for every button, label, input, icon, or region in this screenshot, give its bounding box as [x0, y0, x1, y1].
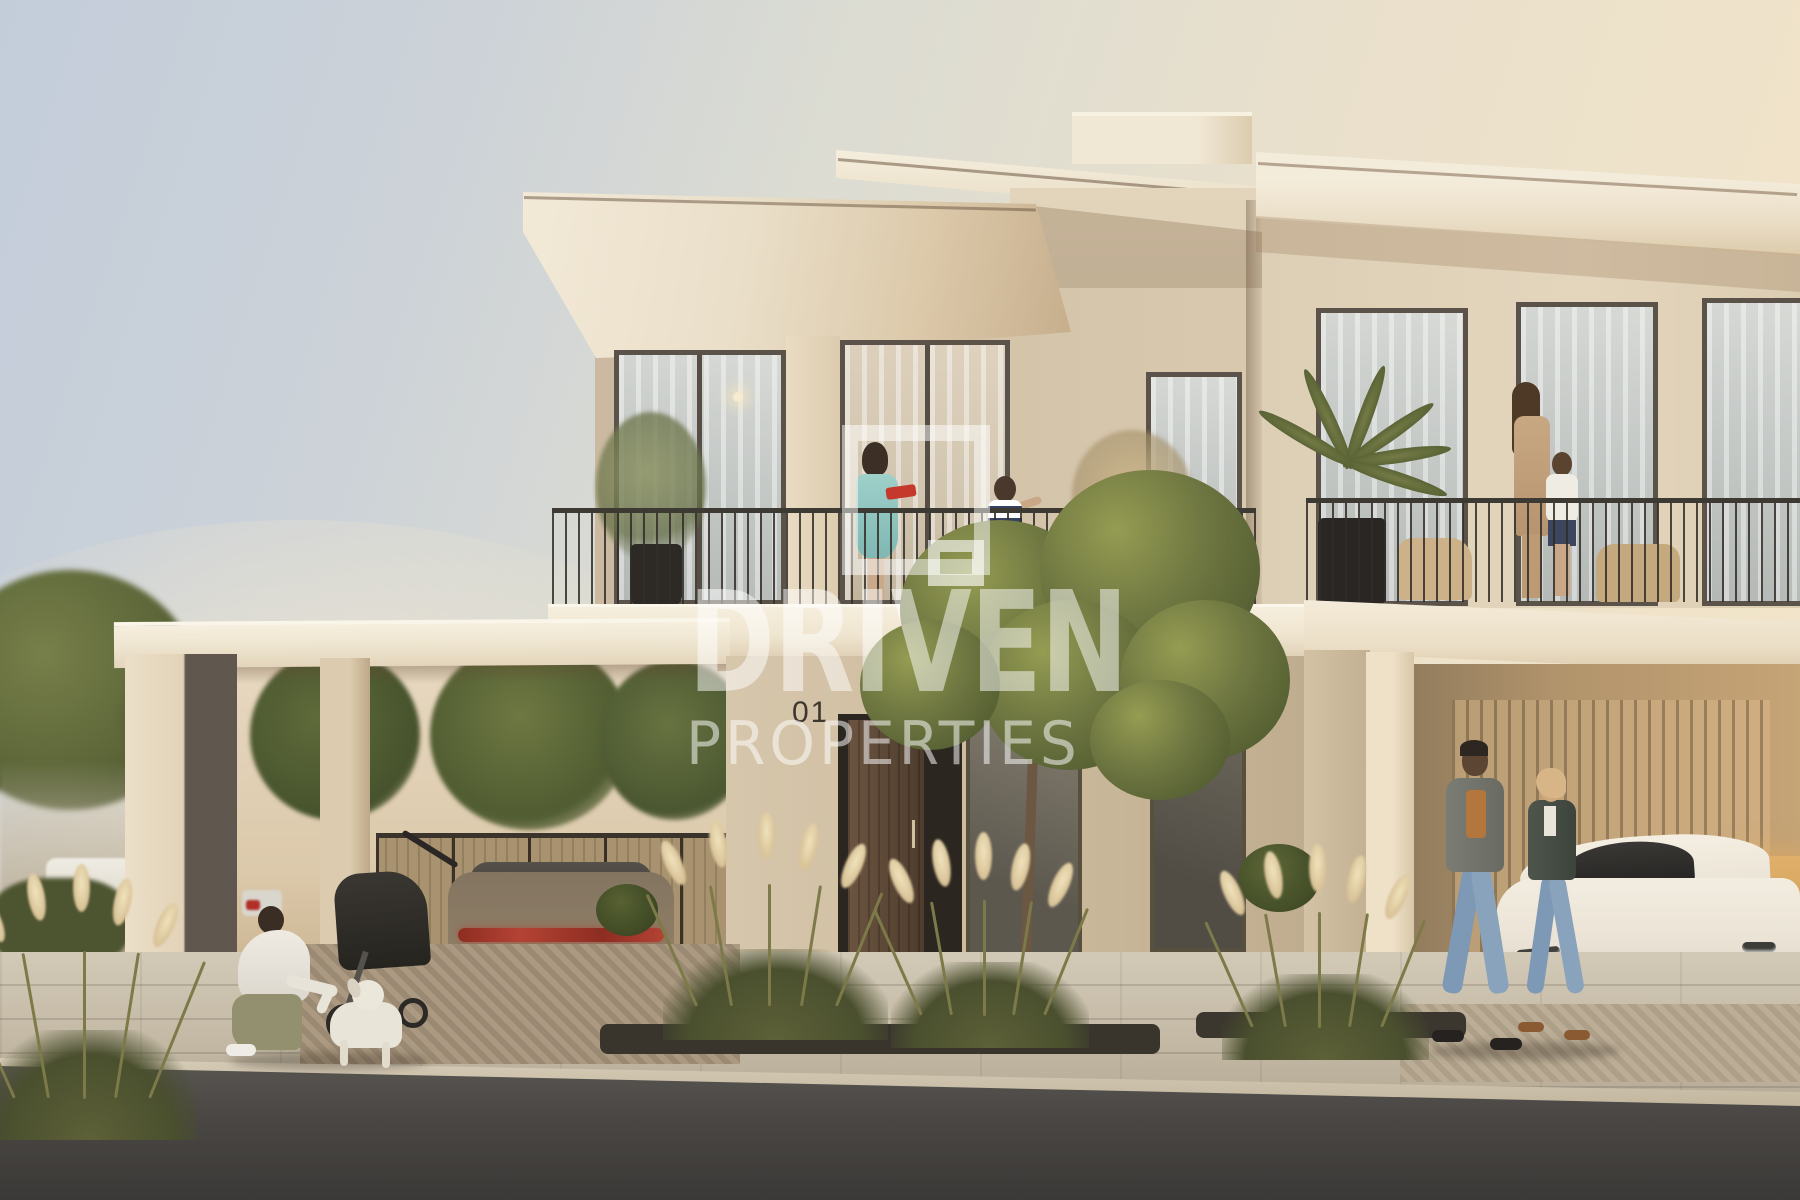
- left-unit-roof-canopy: [523, 190, 1071, 358]
- white-sneaker: [226, 1044, 256, 1056]
- balcony-railing: [1306, 498, 1800, 602]
- ornamental-grass: [1210, 880, 1440, 1060]
- woman-shoe: [1518, 1022, 1544, 1032]
- right-balcony-child-head: [1552, 452, 1572, 476]
- ornamental-grass: [0, 910, 210, 1140]
- woman-shoe: [1564, 1030, 1590, 1040]
- figure-shadow: [1430, 1042, 1620, 1060]
- ornamental-grass: [880, 868, 1100, 1048]
- dog-leg: [340, 1040, 348, 1066]
- walking-man-hair: [1460, 740, 1488, 756]
- distant-car-taillight: [246, 900, 260, 910]
- woman-white-top: [1544, 806, 1556, 836]
- balcony-girl-hair: [994, 476, 1016, 502]
- round-shrub: [596, 884, 658, 936]
- door-handle: [912, 820, 915, 848]
- watermark-title: DRIVEN: [688, 588, 1108, 708]
- baby-stroller: [333, 869, 431, 971]
- dog-leg: [382, 1042, 390, 1068]
- roof-box: [1072, 112, 1252, 164]
- man-shoe: [1432, 1030, 1464, 1042]
- man-brown-shirt: [1466, 790, 1486, 838]
- man-shoe: [1490, 1038, 1522, 1050]
- stroller-wheel: [398, 998, 428, 1028]
- watermark-subtitle: PROPERTIES: [686, 718, 1132, 778]
- interior-light: [733, 392, 743, 402]
- figure-shadow: [230, 1052, 430, 1070]
- villa-rendering: C DUBAI 39764 01 D دبي 786: [0, 0, 1800, 1200]
- ornamental-grass: [650, 850, 900, 1040]
- crouching-woman-legs: [232, 994, 302, 1050]
- walking-woman-hair: [1536, 768, 1566, 798]
- tesla-headlight: [1742, 942, 1776, 952]
- crouching-woman: [238, 930, 310, 1002]
